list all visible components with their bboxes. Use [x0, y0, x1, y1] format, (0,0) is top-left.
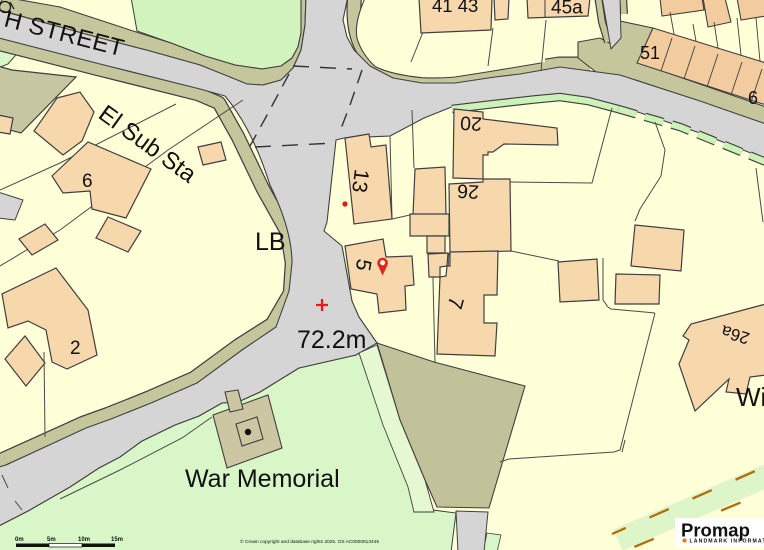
svg-text:War Memorial: War Memorial: [185, 465, 340, 493]
svg-text:51: 51: [640, 43, 660, 63]
svg-text:Promap: Promap: [681, 520, 750, 541]
svg-text:26: 26: [457, 179, 480, 202]
svg-text:15m: 15m: [111, 537, 123, 543]
svg-text:41 43: 41 43: [432, 0, 478, 16]
svg-text:10m: 10m: [78, 537, 90, 543]
svg-text:0m: 0m: [15, 537, 24, 543]
svg-text:72.2m: 72.2m: [297, 326, 366, 354]
svg-text:Wi: Wi: [736, 382, 764, 412]
svg-text:LB: LB: [255, 228, 286, 256]
svg-text:2: 2: [70, 338, 81, 359]
svg-text:20: 20: [459, 111, 482, 134]
svg-text:6: 6: [748, 88, 758, 108]
svg-text:LANDMARK INFORMATION: LANDMARK INFORMATION: [690, 539, 764, 545]
svg-text:© Crown copyright and database: © Crown copyright and database rights 20…: [240, 538, 379, 545]
svg-text:6: 6: [82, 171, 93, 192]
svg-text:13: 13: [347, 168, 373, 194]
svg-text:45a: 45a: [551, 0, 583, 19]
svg-text:5m: 5m: [47, 537, 56, 543]
